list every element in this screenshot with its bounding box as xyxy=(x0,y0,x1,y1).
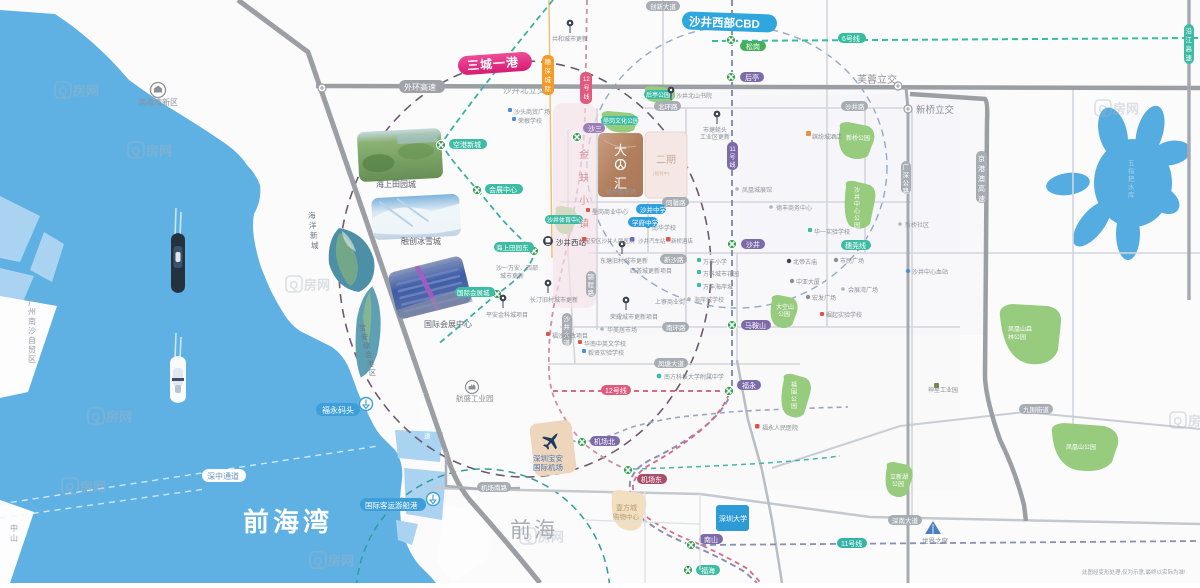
svg-text:宝安区沙井人民医院: 宝安区沙井人民医院 xyxy=(585,237,635,245)
svg-text:上寮商业街: 上寮商业街 xyxy=(655,298,685,306)
svg-text:会展中心: 会展中心 xyxy=(489,185,517,194)
svg-text:沙井: 沙井 xyxy=(746,240,760,249)
svg-text:万丰海岸城: 万丰海岸城 xyxy=(703,283,733,291)
svg-text:同馨路: 同馨路 xyxy=(666,198,686,207)
svg-text:神星工业园: 神星工业园 xyxy=(928,386,958,394)
svg-text:创新大道: 创新大道 xyxy=(650,2,677,11)
svg-text:沙井汽车站: 沙井汽车站 xyxy=(638,237,666,245)
svg-text:海岸城学校: 海岸城学校 xyxy=(694,296,724,304)
svg-text:新桥酒店: 新桥酒店 xyxy=(671,237,694,245)
svg-text:新桥立交: 新桥立交 xyxy=(916,104,955,116)
svg-text:深圳大学: 深圳大学 xyxy=(719,514,747,523)
svg-text:此图经变形处理,仅为示意,最终以实际为准!: 此图经变形处理,仅为示意,最终以实际为准! xyxy=(1082,568,1186,576)
svg-text:平安金科城项目: 平安金科城项目 xyxy=(486,311,528,319)
svg-text:沙头商贸广场: 沙头商贸广场 xyxy=(514,108,550,116)
svg-text:新沙路: 新沙路 xyxy=(664,255,684,264)
svg-text:沙井大道: 沙井大道 xyxy=(564,316,571,347)
svg-text:航盛工业园: 航盛工业园 xyxy=(456,393,494,403)
svg-text:广深公路: 广深公路 xyxy=(903,162,910,195)
svg-text:福围公园: 福围公园 xyxy=(791,381,797,410)
svg-text:缤纷城酒店: 缤纷城酒店 xyxy=(812,133,842,141)
svg-text:宏发广场: 宏发广场 xyxy=(812,294,836,302)
svg-text:凤凰城展馆: 凤凰城展馆 xyxy=(742,186,772,194)
svg-text:锦程路: 锦程路 xyxy=(588,272,595,297)
svg-text:学府中学: 学府中学 xyxy=(632,218,659,227)
svg-text:马鞍山: 马鞍山 xyxy=(745,321,766,330)
svg-text:沙井体育中心: 沙井体育中心 xyxy=(547,216,583,224)
svg-text:滨海湾新区: 滨海湾新区 xyxy=(138,97,178,107)
svg-text:沙井中心血站: 沙井中心血站 xyxy=(912,268,948,276)
svg-text:五指耙水库: 五指耙水库 xyxy=(1128,159,1135,199)
svg-text:空港新城: 空港新城 xyxy=(453,140,481,149)
svg-text:共和城市更新: 共和城市更新 xyxy=(552,35,588,43)
svg-text:北环路: 北环路 xyxy=(658,102,678,111)
svg-text:机场南路: 机场南路 xyxy=(481,483,508,492)
svg-text:海上田园城: 海上田园城 xyxy=(376,179,416,189)
svg-text:荣根学校: 荣根学校 xyxy=(518,117,542,125)
svg-text:(规划中): (规划中) xyxy=(653,170,670,177)
svg-text:广州南沙自贸区: 广州南沙自贸区 xyxy=(28,297,36,364)
svg-text:立新湖: 立新湖 xyxy=(890,473,908,481)
svg-text:前海湾: 前海湾 xyxy=(243,507,333,537)
svg-text:深中通道: 深中通道 xyxy=(207,471,239,481)
svg-text:福沙旧改项目: 福沙旧改项目 xyxy=(552,332,588,340)
svg-text:沙井西站: 沙井西站 xyxy=(556,237,586,247)
svg-text:城市更新: 城市更新 xyxy=(500,272,524,280)
svg-text:林公园: 林公园 xyxy=(1008,333,1026,341)
svg-text:后亭公园: 后亭公园 xyxy=(646,91,670,99)
svg-text:机场北: 机场北 xyxy=(594,437,615,446)
svg-text:沙一万安、西部: 沙一万安、西部 xyxy=(496,264,538,272)
svg-text:壹方城: 壹方城 xyxy=(616,503,637,512)
svg-text:6号线: 6号线 xyxy=(842,34,860,43)
svg-text:中亚大厦: 中亚大厦 xyxy=(796,278,820,286)
svg-text:后亭: 后亭 xyxy=(745,73,759,82)
svg-text:荣耀城市更新项目: 荣耀城市更新项目 xyxy=(610,313,658,321)
svg-text:11号线: 11号线 xyxy=(730,147,737,169)
svg-text:壆岗商业中心: 壆岗商业中心 xyxy=(592,208,628,216)
svg-text:凤凰山森: 凤凰山森 xyxy=(1008,325,1032,333)
svg-text:市民广场: 市民广场 xyxy=(840,257,864,265)
svg-text:福永人民医院: 福永人民医院 xyxy=(762,424,798,432)
svg-text:世界之窗: 世界之窗 xyxy=(922,536,948,545)
svg-text:国际机场: 国际机场 xyxy=(533,462,563,472)
svg-text:国际会展中心: 国际会展中心 xyxy=(424,319,472,329)
svg-text:沙井中学: 沙井中学 xyxy=(640,205,667,214)
svg-text:沙井路: 沙井路 xyxy=(845,102,865,111)
svg-text:松岗: 松岗 xyxy=(746,42,760,51)
svg-text:公园: 公园 xyxy=(892,481,904,488)
svg-text:新桥公园: 新桥公园 xyxy=(846,134,870,142)
svg-text:工业区更新: 工业区更新 xyxy=(700,133,730,141)
svg-text:沙井北立交: 沙井北立交 xyxy=(503,85,546,95)
svg-text:穗莞线: 穗莞线 xyxy=(845,241,866,250)
svg-text:福永码头: 福永码头 xyxy=(322,405,354,415)
svg-text:毅贤实验学校: 毅贤实验学校 xyxy=(588,349,624,357)
svg-text:汇: 汇 xyxy=(614,176,627,191)
svg-text:12号线: 12号线 xyxy=(605,386,627,395)
svg-text:福海: 福海 xyxy=(701,566,715,575)
svg-text:新桥社区: 新桥社区 xyxy=(905,221,929,229)
svg-text:万科城市花园: 万科城市花园 xyxy=(703,270,739,278)
svg-text:蚝乡路市场: 蚝乡路市场 xyxy=(606,188,636,196)
svg-text:外环高速: 外环高速 xyxy=(404,82,436,92)
svg-text:东塘旧村城市更新: 东塘旧村城市更新 xyxy=(600,257,648,265)
svg-text:华美居市场: 华美居市场 xyxy=(607,326,637,334)
svg-text:大: 大 xyxy=(614,143,627,158)
svg-text:二期: 二期 xyxy=(656,154,676,166)
svg-text:国际客运游船港: 国际客运游船港 xyxy=(365,500,418,510)
svg-text:市塘蚝头: 市塘蚝头 xyxy=(703,126,727,134)
svg-text:大空山: 大空山 xyxy=(776,303,794,311)
svg-text:南山: 南山 xyxy=(704,535,718,544)
svg-text:芙蓉立交: 芙蓉立交 xyxy=(857,73,897,86)
svg-text:沙三: 沙三 xyxy=(588,125,602,133)
svg-text:九围街道: 九围街道 xyxy=(1023,405,1050,414)
svg-text:西荟城更新项目: 西荟城更新项目 xyxy=(630,267,672,275)
svg-text:海上田园东: 海上田园东 xyxy=(496,243,529,252)
svg-text:12号线: 12号线 xyxy=(583,77,590,101)
svg-text:购物中心: 购物中心 xyxy=(613,512,640,521)
svg-text:机场东: 机场东 xyxy=(641,475,662,484)
svg-text:会展湾广场: 会展湾广场 xyxy=(848,286,878,294)
svg-text:德丰商务中心: 德丰商务中心 xyxy=(776,204,812,212)
svg-text:凤塘大道: 凤塘大道 xyxy=(658,359,685,368)
svg-text:南环路: 南环路 xyxy=(666,323,686,332)
svg-text:京港澳高速: 京港澳高速 xyxy=(978,154,985,203)
svg-text:南方科技大学附属中学: 南方科技大学附属中学 xyxy=(664,373,724,381)
svg-text:公园: 公园 xyxy=(778,311,790,318)
svg-text:华南中英文学校: 华南中英文学校 xyxy=(584,340,626,348)
svg-text:长汀旧村城市更新: 长汀旧村城市更新 xyxy=(530,296,578,304)
svg-text:北帝古庙: 北帝古庙 xyxy=(793,258,817,266)
svg-text:凤凰山公园: 凤凰山公园 xyxy=(1066,443,1096,451)
svg-text:融创冰雪城: 融创冰雪城 xyxy=(401,236,441,246)
svg-text:华一实验学校: 华一实验学校 xyxy=(814,228,850,236)
svg-text:深南大道: 深南大道 xyxy=(892,516,919,525)
svg-text:崛起实验学校: 崛起实验学校 xyxy=(826,311,862,319)
svg-text:沙井北山书院: 沙井北山书院 xyxy=(676,92,712,100)
svg-text:万丰小学: 万丰小学 xyxy=(703,258,727,266)
svg-text:国际会展城: 国际会展城 xyxy=(457,288,490,297)
svg-text:11号线: 11号线 xyxy=(841,539,862,548)
svg-text:壆岗文化公园: 壆岗文化公园 xyxy=(603,117,639,125)
svg-text:深圳宝安: 深圳宝安 xyxy=(533,453,563,463)
svg-text:福永: 福永 xyxy=(742,381,756,390)
